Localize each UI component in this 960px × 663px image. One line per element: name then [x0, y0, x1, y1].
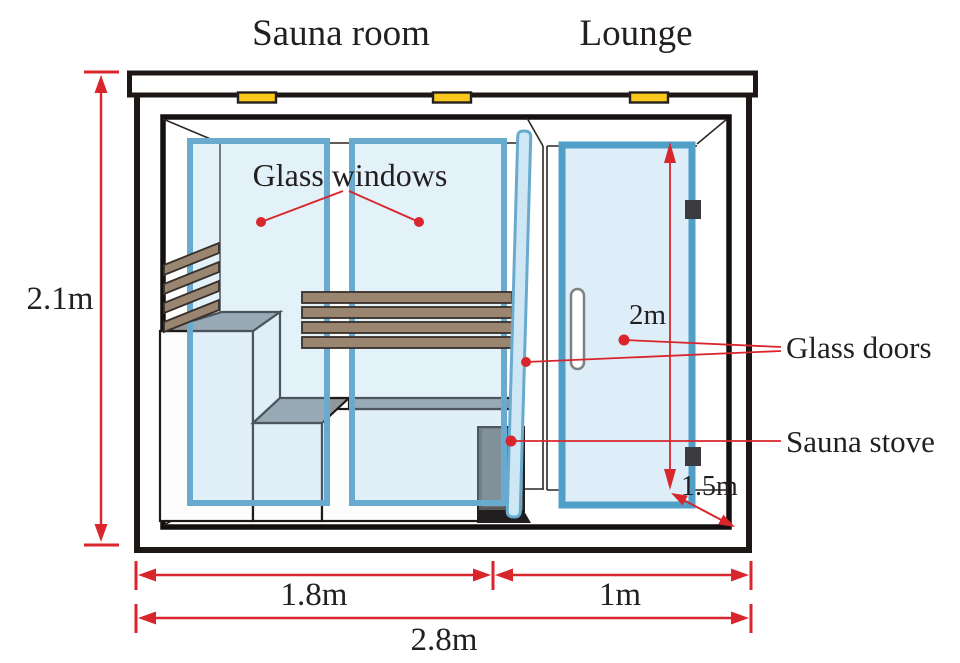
cabin-depth-value: 1.5m: [681, 471, 738, 502]
sauna-cabin-diagram: Sauna room Lounge Glass windows Glass do…: [0, 0, 960, 663]
ceiling-light-icon: [630, 93, 668, 103]
sauna-room-label: Sauna room: [252, 13, 430, 54]
glass-windows-label: Glass windows: [253, 157, 448, 193]
ceiling-light-icon: [238, 93, 276, 103]
wood-slat: [302, 292, 512, 303]
sauna-stove-label: Sauna stove: [786, 424, 935, 459]
door-hinge-icon: [685, 200, 701, 219]
door-height-value: 2m: [629, 299, 667, 331]
glass-doors-label: Glass doors: [786, 330, 932, 365]
lounge-width-value: 1m: [599, 577, 642, 613]
overall-width-value: 2.8m: [411, 622, 478, 658]
lounge-label: Lounge: [579, 13, 692, 54]
wood-slat: [302, 307, 512, 318]
wood-slat: [302, 337, 512, 348]
stove-base: [477, 511, 531, 523]
sauna-width-value: 1.8m: [281, 577, 348, 613]
overall-height-value: 2.1m: [27, 281, 94, 317]
door-handle-icon: [571, 289, 584, 369]
door-hinge-icon: [685, 447, 701, 466]
wood-slat: [302, 322, 512, 333]
ceiling-light-icon: [433, 93, 471, 103]
